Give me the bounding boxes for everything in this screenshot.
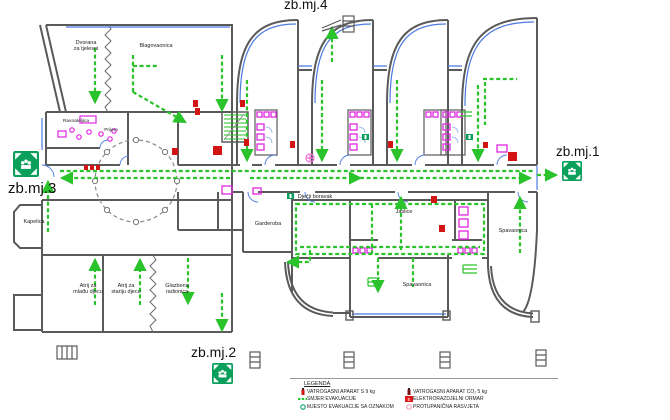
room-label-djecji-boravak: Dječji boravak	[298, 194, 333, 200]
legend-item-label: SMJER EVAKUACIJE	[307, 396, 356, 402]
legend-item: MJESTO EVAKUACIJE SA OZNAKOM	[298, 403, 400, 411]
room-label-garderoba: Garderoba	[255, 221, 281, 227]
legend-item-label: VATROGASNI APARAT S 9 kg	[307, 389, 375, 395]
staircase	[222, 112, 248, 142]
room-label-atrij-mladja: Atrij za mlađu djecu	[73, 283, 103, 296]
assembly-point-icon	[562, 161, 582, 181]
legend-item: PROTUPANIČNA RASVJETA	[404, 403, 552, 411]
legend-item: E ELEKTRORAZDJELNI ORMAR	[404, 396, 552, 404]
evacuation-plan-canvas: zb.mj.4 zb.mj.1 zb.mj.3 zb.mj.2 Dvorana …	[0, 0, 670, 420]
room-label-blagovaonica: Blagovaonica	[139, 43, 172, 49]
legend-item-label: PROTUPANIČNA RASVJETA	[413, 404, 479, 410]
legend-item-label: VATROGASNI APARAT CO₂ 5 kg	[413, 389, 487, 395]
room-label-ravnateljica: Ravnateljica	[63, 119, 89, 125]
room-label-prijem: Prijem	[104, 128, 118, 134]
room-label-spavaonica-dolje: Spavaonica	[403, 282, 432, 288]
legend-item: VATROGASNI APARAT CO₂ 5 kg	[404, 388, 552, 396]
legend-divider	[290, 378, 558, 379]
room-label-spavaonica-desno: Spavaonica	[499, 228, 528, 234]
legend-item: VATROGASNI APARAT S 9 kg	[298, 388, 400, 396]
walls-top-wings	[237, 18, 537, 165]
room-label-glazbena: Glazbena radionica	[165, 283, 189, 296]
assembly-point-icon	[212, 363, 233, 384]
fire-extinguisher-co2-icon	[404, 388, 413, 395]
legend-item: SMJER EVAKUACIJE	[298, 396, 400, 404]
floor-plan-drawing	[0, 0, 670, 420]
assembly-label-zbmj4: zb.mj.4	[284, 0, 328, 13]
central-hall-circle	[92, 137, 179, 224]
room-label-jaslice: Jaslice	[396, 209, 413, 215]
svg-text:E: E	[407, 397, 410, 402]
assembly-point-icon	[13, 151, 39, 177]
legend-item-label: MJESTO EVAKUACIJE SA OZNAKOM	[307, 404, 394, 410]
assembly-label-zbmj1: zb.mj.1	[556, 144, 600, 160]
evacuation-point-icon	[298, 403, 307, 410]
legend-title: LEGENDA	[304, 381, 558, 387]
sanitary-fixtures	[255, 110, 465, 155]
assembly-label-zbmj3: zb.mj.3	[8, 180, 56, 197]
electrical-cabinet-icon: E	[404, 396, 413, 403]
assembly-label-zbmj2: zb.mj.2	[191, 344, 236, 360]
evacuation-direction-icon	[298, 396, 307, 403]
room-label-dvorana: Dvorana za tjelesni	[74, 40, 98, 53]
legend: LEGENDA VATROGASNI APARAT S 9 kg SMJER E…	[296, 379, 558, 411]
room-label-atrij-starija: Atrij za stariju djecu	[111, 283, 140, 296]
anti-panic-light-icon	[404, 403, 413, 410]
fire-extinguisher-s9-icon	[298, 388, 307, 395]
room-label-kapelica: Kapelica	[23, 219, 44, 225]
legend-item-label: ELEKTRORAZDJELNI ORMAR	[413, 396, 484, 402]
anti-panic-light-symbols	[306, 154, 314, 162]
